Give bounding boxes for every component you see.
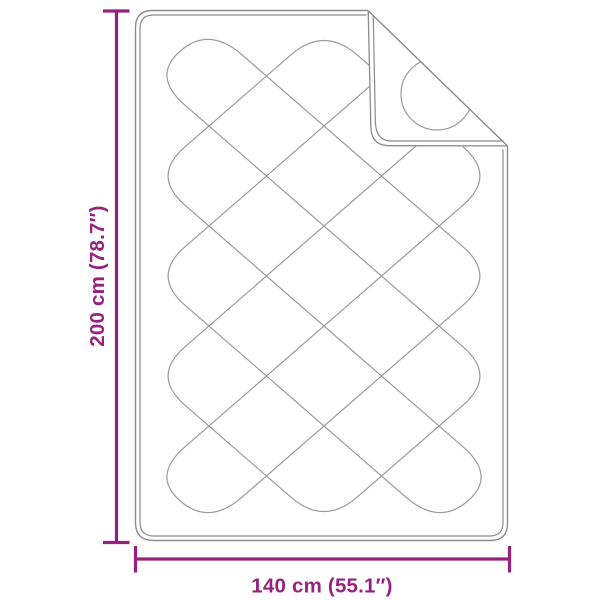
diagram-canvas: 200 cm (78.7″) 140 cm (55.1″)	[0, 0, 600, 600]
height-dimension-label: 200 cm (78.7″)	[86, 205, 109, 346]
width-dimension-line	[136, 546, 510, 573]
width-dimension-strokes	[136, 546, 510, 573]
blanket-body	[136, 11, 508, 541]
width-dimension-label: 140 cm (55.1″)	[251, 575, 392, 598]
product-dimension-diagram: 200 cm (78.7″) 140 cm (55.1″)	[0, 0, 600, 600]
